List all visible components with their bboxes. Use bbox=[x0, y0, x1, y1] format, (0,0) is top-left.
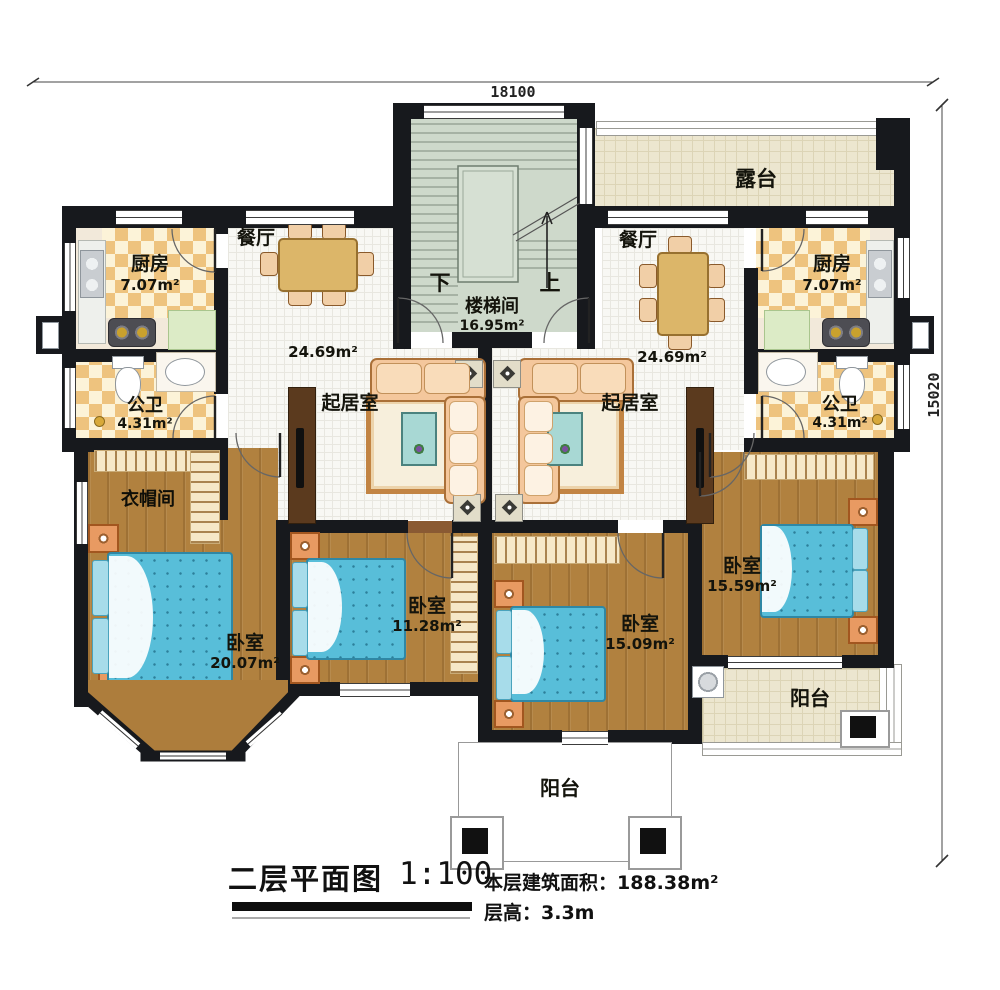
dimension-width: 18100 bbox=[478, 83, 548, 101]
room-label-terrace: 露台 bbox=[720, 168, 792, 190]
wall bbox=[876, 118, 910, 170]
column-core bbox=[850, 716, 876, 738]
kitchen-cabinet bbox=[168, 310, 216, 350]
bed-pillow bbox=[496, 610, 512, 654]
nightstand bbox=[848, 498, 878, 526]
room-label-dining-left: 餐厅 bbox=[214, 229, 298, 249]
room-label-kitchen-right: 厨房 bbox=[790, 255, 874, 275]
room-label-cloakroom: 衣帽间 bbox=[110, 491, 186, 510]
window bbox=[246, 210, 354, 225]
sofa-cushion bbox=[449, 465, 478, 496]
coffee-table bbox=[401, 412, 437, 466]
chair bbox=[260, 252, 278, 276]
bed-pillow bbox=[292, 562, 308, 608]
sofa-cushion bbox=[376, 363, 422, 394]
dimension-height: 15020 bbox=[925, 357, 943, 433]
chimney-right-inner bbox=[912, 322, 929, 349]
room-area-bedroom-s2: 15.09m² bbox=[594, 637, 686, 653]
sofa-cushion bbox=[524, 465, 553, 496]
room-area-bedroom-se: 15.59m² bbox=[696, 579, 788, 595]
title-underline-thin bbox=[232, 917, 470, 919]
chair bbox=[639, 264, 657, 288]
wall bbox=[452, 332, 532, 348]
window bbox=[728, 656, 842, 669]
window bbox=[64, 368, 76, 428]
room-label-bedroom-s2: 卧室 bbox=[598, 615, 682, 635]
sofa-cushion bbox=[580, 363, 626, 394]
dining-table bbox=[657, 252, 709, 336]
window bbox=[340, 683, 410, 697]
stove bbox=[822, 318, 870, 347]
wardrobe bbox=[494, 536, 620, 564]
stove bbox=[108, 318, 156, 347]
room-label-balcony-east: 阳台 bbox=[775, 688, 845, 709]
window bbox=[608, 210, 728, 225]
chair bbox=[639, 298, 657, 322]
title-underline-bar bbox=[232, 902, 472, 911]
bed-pillow bbox=[92, 560, 109, 616]
room-label-balcony-south: 阳台 bbox=[525, 778, 595, 799]
room-label-stairwell: 楼梯间 bbox=[450, 298, 534, 317]
room-area-bedroom-sw: 20.07m² bbox=[200, 656, 290, 672]
sofa-cushion bbox=[424, 363, 470, 394]
window bbox=[897, 365, 910, 429]
stair-up-label: 上 bbox=[536, 272, 564, 294]
room-label-bath-left: 公卫 bbox=[103, 397, 187, 416]
sofa-cushion bbox=[524, 433, 553, 464]
tv bbox=[296, 428, 304, 488]
chair bbox=[356, 252, 374, 276]
door-sill bbox=[408, 521, 452, 533]
wall bbox=[276, 533, 290, 697]
terrace-railing bbox=[596, 121, 878, 136]
room-area-kitchen-left: 7.07m² bbox=[108, 278, 192, 294]
wash-basin bbox=[766, 358, 806, 386]
wall bbox=[878, 452, 894, 657]
bed-pillow bbox=[852, 528, 868, 570]
wall bbox=[410, 682, 478, 696]
bed-pillow bbox=[92, 618, 109, 674]
nightstand bbox=[290, 656, 320, 684]
column-core bbox=[640, 828, 666, 854]
sliding-door bbox=[562, 731, 608, 745]
wall bbox=[744, 438, 908, 452]
column-core bbox=[462, 828, 488, 854]
room-area-stairwell: 16.95m² bbox=[450, 319, 534, 334]
sofa-cushion bbox=[449, 433, 478, 464]
bed-pillow bbox=[292, 610, 308, 656]
room-label-bedroom-sw: 卧室 bbox=[203, 634, 287, 654]
nightstand bbox=[88, 524, 119, 553]
sofa-cushion bbox=[532, 363, 578, 394]
wall bbox=[288, 682, 340, 696]
chimney-left-inner bbox=[42, 322, 59, 349]
window bbox=[806, 210, 868, 225]
room-label-kitchen-left: 厨房 bbox=[108, 255, 192, 275]
nightstand bbox=[848, 616, 878, 644]
wardrobe bbox=[190, 450, 220, 544]
kitchen-cabinet bbox=[764, 310, 810, 350]
floor-area-text: 本层建筑面积：188.38m² bbox=[484, 868, 718, 895]
wardrobe bbox=[94, 450, 192, 472]
room-area-dining-right: 24.69m² bbox=[630, 350, 714, 366]
wall bbox=[744, 268, 758, 394]
wall bbox=[393, 103, 411, 349]
wash-basin bbox=[165, 358, 205, 386]
kitchen-sink bbox=[80, 250, 104, 298]
window bbox=[897, 238, 910, 298]
room-area-bedroom-s1: 11.28m² bbox=[382, 619, 472, 635]
wall bbox=[214, 268, 228, 394]
washing-machine bbox=[692, 666, 724, 698]
room-area-kitchen-right: 7.07m² bbox=[790, 278, 874, 294]
sofa-cushion bbox=[449, 401, 478, 432]
pillar-ornament bbox=[493, 360, 521, 388]
room-area-dining-left: 24.69m² bbox=[281, 345, 365, 361]
pillar-ornament bbox=[495, 494, 523, 522]
room-label-living-right: 起居室 bbox=[590, 394, 670, 414]
stair-down-label: 下 bbox=[426, 272, 454, 294]
bed-pillow bbox=[852, 570, 868, 612]
window bbox=[64, 243, 76, 311]
wall bbox=[842, 655, 894, 668]
drawing-scale: 1:100 bbox=[399, 856, 492, 892]
room-label-living-left: 起居室 bbox=[310, 394, 390, 414]
floor-height-text: 层高：3.3m bbox=[484, 898, 594, 925]
page-title: 二层平面图 bbox=[228, 856, 383, 898]
room-label-dining-right: 餐厅 bbox=[596, 231, 680, 251]
bed-pillow bbox=[496, 656, 512, 700]
window bbox=[579, 128, 593, 204]
title-block: 二层平面图 1:100 bbox=[228, 856, 492, 898]
room-label-bedroom-s1: 卧室 bbox=[385, 597, 469, 617]
floor-plan: 露台 楼梯间 16.95m² 下 上 厨房 7.07m² 厨房 7.07m² 餐… bbox=[0, 0, 1000, 990]
wardrobe bbox=[744, 454, 874, 480]
chair bbox=[707, 264, 725, 288]
window bbox=[424, 105, 564, 119]
window bbox=[76, 482, 88, 544]
pillar-ornament bbox=[453, 494, 481, 522]
room-label-bedroom-se: 卧室 bbox=[700, 557, 784, 577]
window bbox=[116, 210, 182, 225]
room-label-bath-right: 公卫 bbox=[798, 396, 882, 415]
tv bbox=[696, 428, 704, 488]
nightstand bbox=[290, 532, 320, 560]
chair bbox=[707, 298, 725, 322]
nightstand bbox=[494, 580, 524, 608]
nightstand bbox=[494, 700, 524, 728]
room-area-bath-right: 4.31m² bbox=[798, 416, 882, 431]
room-area-bath-left: 4.31m² bbox=[103, 417, 187, 432]
sofa-cushion bbox=[524, 401, 553, 432]
